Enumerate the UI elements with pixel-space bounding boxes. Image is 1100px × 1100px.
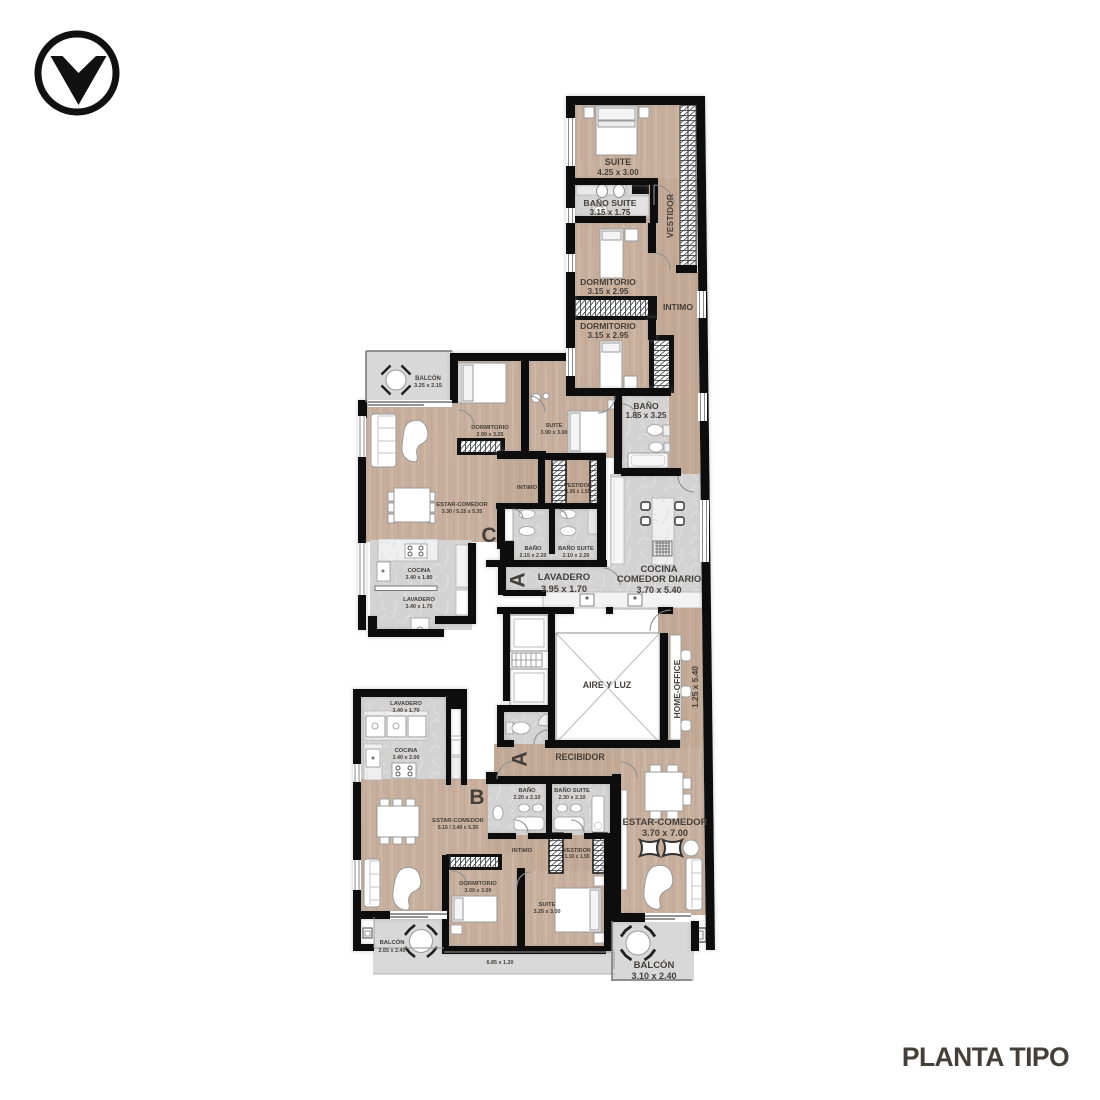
svg-text:LAVADERO: LAVADERO xyxy=(538,572,591,583)
svg-text:BAÑO SUITE: BAÑO SUITE xyxy=(554,787,590,794)
svg-text:SUITE: SUITE xyxy=(545,423,562,429)
svg-text:BALCÓN: BALCÓN xyxy=(634,959,675,971)
svg-text:HOME-OFFICE: HOME-OFFICE xyxy=(672,659,682,718)
svg-text:2.65 x 2.40: 2.65 x 2.40 xyxy=(379,948,406,954)
svg-text:1.25 x 5.40: 1.25 x 5.40 xyxy=(690,666,700,708)
svg-text:BAÑO: BAÑO xyxy=(524,545,542,552)
svg-text:LAVADERO: LAVADERO xyxy=(403,597,435,603)
svg-text:A: A xyxy=(507,572,530,587)
svg-text:PLANTA TIPO: PLANTA TIPO xyxy=(902,1042,1069,1072)
svg-text:C: C xyxy=(481,524,496,547)
svg-text:3.30 / 5.15 x 5.35: 3.30 / 5.15 x 5.35 xyxy=(442,509,482,515)
svg-text:3.10 x 2.40: 3.10 x 2.40 xyxy=(631,971,676,981)
svg-text:DORMITORIO: DORMITORIO xyxy=(580,321,636,331)
svg-text:INTIMO: INTIMO xyxy=(517,485,538,491)
svg-text:AIRE Y LUZ: AIRE Y LUZ xyxy=(583,680,632,690)
svg-text:BAÑO SUITE: BAÑO SUITE xyxy=(584,198,637,208)
svg-text:BALCÓN: BALCÓN xyxy=(380,938,405,946)
svg-text:DORMITORIO: DORMITORIO xyxy=(471,425,509,431)
svg-text:1.10 x 1.55: 1.10 x 1.55 xyxy=(564,854,589,860)
svg-text:INTIMO: INTIMO xyxy=(512,848,533,854)
svg-text:1.05 x 1.55: 1.05 x 1.55 xyxy=(565,489,590,495)
svg-text:ESTAR-COMEDOR: ESTAR-COMEDOR xyxy=(622,817,707,828)
svg-text:3.95 x 1.70: 3.95 x 1.70 xyxy=(541,584,587,594)
svg-text:A: A xyxy=(509,751,532,766)
svg-text:1.85 x 3.25: 1.85 x 3.25 xyxy=(626,411,667,420)
svg-text:BAÑO: BAÑO xyxy=(633,401,659,411)
svg-text:3.40 x 2.00: 3.40 x 2.00 xyxy=(393,755,420,761)
svg-text:3.15 x 2.95: 3.15 x 2.95 xyxy=(588,287,629,296)
svg-text:B: B xyxy=(469,786,484,809)
svg-text:3.40 x 1.70: 3.40 x 1.70 xyxy=(393,708,420,714)
svg-text:4.25 x 3.00: 4.25 x 3.00 xyxy=(597,167,639,177)
svg-text:DORMITORIO: DORMITORIO xyxy=(459,881,497,887)
svg-text:3.25 x 2.15: 3.25 x 2.15 xyxy=(414,383,442,389)
svg-text:2.30 x 2.10: 2.30 x 2.10 xyxy=(559,795,586,801)
svg-text:3.15 x 2.95: 3.15 x 2.95 xyxy=(588,331,629,340)
svg-text:2.10 x 2.20: 2.10 x 2.20 xyxy=(563,553,590,559)
svg-text:3.90 x 3.00: 3.90 x 3.00 xyxy=(541,430,568,436)
svg-text:3.00 x 3.00: 3.00 x 3.00 xyxy=(465,888,492,894)
svg-text:COCINA: COCINA xyxy=(408,568,432,574)
svg-text:3.70 x 7.00: 3.70 x 7.00 xyxy=(642,828,688,838)
svg-text:SUITE: SUITE xyxy=(605,157,632,167)
svg-text:BALCÓN: BALCÓN xyxy=(415,374,441,382)
svg-text:LAVADERO: LAVADERO xyxy=(390,701,422,707)
svg-text:SUITE: SUITE xyxy=(538,902,555,908)
svg-text:3.25 x 3.00: 3.25 x 3.00 xyxy=(534,909,561,915)
svg-text:INTIMO: INTIMO xyxy=(663,302,693,312)
svg-text:ESTAR-COMEDOR: ESTAR-COMEDOR xyxy=(436,502,488,508)
svg-text:3.40 x 1.70: 3.40 x 1.70 xyxy=(406,604,433,610)
svg-text:3.15 x 1.75: 3.15 x 1.75 xyxy=(590,208,631,217)
svg-text:3.40 x 1.80: 3.40 x 1.80 xyxy=(406,575,433,581)
svg-text:BAÑO SUITE: BAÑO SUITE xyxy=(558,545,594,552)
svg-text:2.15 x 2.20: 2.15 x 2.20 xyxy=(520,553,547,559)
svg-text:3.70 x 5.40: 3.70 x 5.40 xyxy=(636,585,681,595)
svg-text:5.15 / 3.40 x 5.35: 5.15 / 3.40 x 5.35 xyxy=(438,825,478,831)
svg-text:COCINA: COCINA xyxy=(395,748,419,754)
svg-text:DORMITORIO: DORMITORIO xyxy=(580,277,636,287)
svg-text:2.20 x 2.10: 2.20 x 2.10 xyxy=(514,795,541,801)
svg-text:VESTIDOR: VESTIDOR xyxy=(665,193,675,238)
svg-text:BAÑO: BAÑO xyxy=(518,787,536,794)
svg-text:ESTAR-COMEDOR: ESTAR-COMEDOR xyxy=(432,818,484,824)
svg-text:COMEDOR DIARIO: COMEDOR DIARIO xyxy=(617,573,701,584)
svg-text:RECIBIDOR: RECIBIDOR xyxy=(555,752,605,762)
svg-text:6.85 x 1.20: 6.85 x 1.20 xyxy=(487,960,514,966)
svg-text:2.90 x 3.25: 2.90 x 3.25 xyxy=(477,432,504,438)
